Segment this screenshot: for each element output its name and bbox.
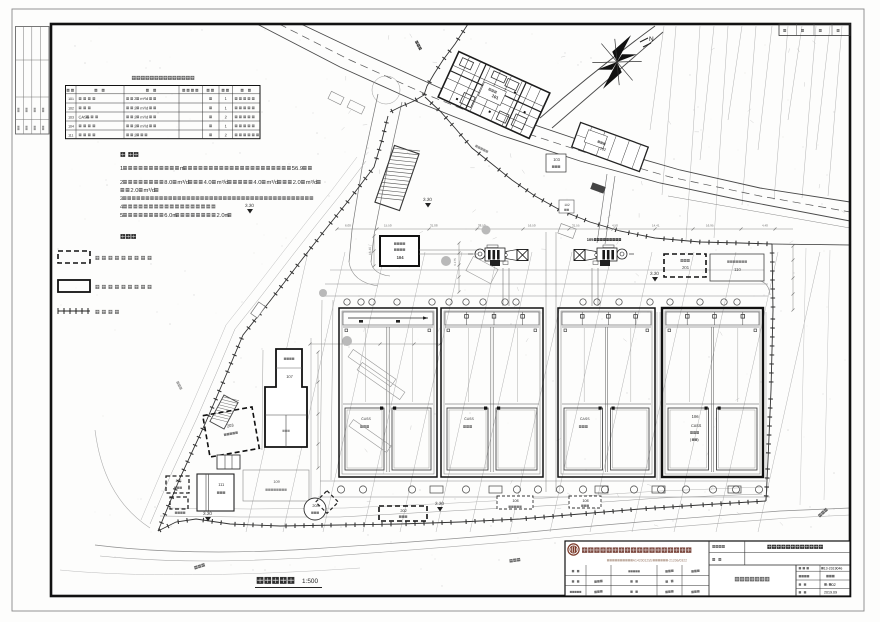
- svg-text:CASS: CASS: [464, 417, 474, 421]
- svg-text:105: 105: [587, 237, 594, 242]
- svg-text:205: 205: [176, 479, 182, 483]
- svg-text:104: 104: [68, 124, 74, 128]
- svg-text:202: 202: [400, 509, 406, 513]
- svg-text:3.30: 3.30: [423, 197, 432, 202]
- svg-text:/: /: [650, 559, 651, 563]
- svg-text:16.50: 16.50: [528, 224, 536, 228]
- svg-text:5: 5: [120, 213, 123, 219]
- svg-text:): ): [697, 438, 699, 442]
- svg-text:4.40: 4.40: [762, 224, 768, 228]
- svg-text:110: 110: [734, 267, 741, 272]
- svg-text:CASS: CASS: [361, 417, 371, 421]
- svg-text:6.00: 6.00: [345, 224, 351, 228]
- svg-text:2019.09: 2019.09: [824, 591, 837, 595]
- svg-text:104: 104: [397, 255, 405, 260]
- svg-text:2: 2: [120, 179, 123, 186]
- svg-text:1: 1: [225, 123, 228, 128]
- svg-text:102: 102: [68, 106, 74, 110]
- svg-text:(: (: [690, 438, 692, 442]
- svg-text:14.41: 14.41: [652, 224, 660, 228]
- svg-text:103: 103: [68, 115, 74, 119]
- svg-text:102: 102: [564, 203, 570, 207]
- svg-text:107: 107: [286, 374, 293, 379]
- svg-text:101: 101: [68, 97, 74, 101]
- svg-text:CASS: CASS: [691, 424, 702, 428]
- svg-text:111: 111: [68, 133, 73, 137]
- svg-text:3.30: 3.30: [203, 511, 212, 516]
- svg-text:13-2019046: 13-2019046: [824, 567, 843, 571]
- svg-text:1: 1: [225, 105, 228, 110]
- svg-text:3: 3: [120, 196, 123, 202]
- svg-text:201: 201: [682, 265, 690, 270]
- svg-text:16.40: 16.40: [368, 247, 372, 255]
- svg-text:m³/d: m³/d: [144, 187, 156, 194]
- svg-text:4.50: 4.50: [612, 224, 618, 228]
- svg-text:106: 106: [692, 414, 700, 419]
- svg-text:31.08: 31.08: [430, 224, 438, 228]
- svg-text:2: 2: [225, 132, 228, 137]
- svg-text:3.30: 3.30: [245, 203, 254, 208]
- svg-text:1: 1: [120, 166, 123, 172]
- svg-text:8.0: 8.0: [164, 179, 172, 186]
- svg-text:-21206/0322: -21206/0322: [668, 559, 687, 563]
- svg-text:m³/d: m³/d: [177, 179, 189, 186]
- svg-text:109: 109: [273, 480, 279, 484]
- svg-text:m³/d: m³/d: [140, 96, 148, 101]
- svg-text:02: 02: [832, 583, 836, 587]
- svg-text:31.55: 31.55: [572, 224, 580, 228]
- svg-text:111: 111: [218, 482, 225, 487]
- svg-text:3.30: 3.30: [650, 271, 659, 276]
- svg-text:N: N: [649, 36, 654, 43]
- svg-text:4.0: 4.0: [204, 179, 212, 186]
- svg-text:56.9: 56.9: [292, 165, 303, 172]
- svg-text:m³/d: m³/d: [217, 179, 229, 186]
- svg-text:2.0: 2.0: [293, 179, 301, 186]
- svg-text:1: 1: [225, 96, 228, 101]
- svg-text:3.30: 3.30: [435, 501, 444, 506]
- svg-text:6.175: 6.175: [453, 258, 457, 266]
- svg-text:2.0: 2.0: [130, 187, 138, 194]
- svg-text:2: 2: [225, 114, 228, 119]
- svg-text:m³/d: m³/d: [267, 179, 279, 186]
- svg-text:m³/d: m³/d: [140, 105, 148, 110]
- svg-text:4.0: 4.0: [253, 179, 261, 186]
- svg-text:CASS: CASS: [580, 417, 590, 421]
- svg-text:m³/d: m³/d: [306, 179, 318, 186]
- svg-text:15.50: 15.50: [384, 224, 392, 228]
- svg-text:m³/d: m³/d: [140, 114, 148, 119]
- svg-text:106: 106: [512, 499, 518, 503]
- svg-text:204: 204: [312, 504, 318, 508]
- svg-text:106: 106: [582, 499, 588, 503]
- svg-text:203: 203: [227, 422, 235, 428]
- svg-text:16.95: 16.95: [706, 224, 714, 228]
- svg-text:1:500: 1:500: [302, 578, 318, 585]
- svg-text:103: 103: [553, 157, 560, 162]
- svg-text:m³/d: m³/d: [140, 123, 148, 128]
